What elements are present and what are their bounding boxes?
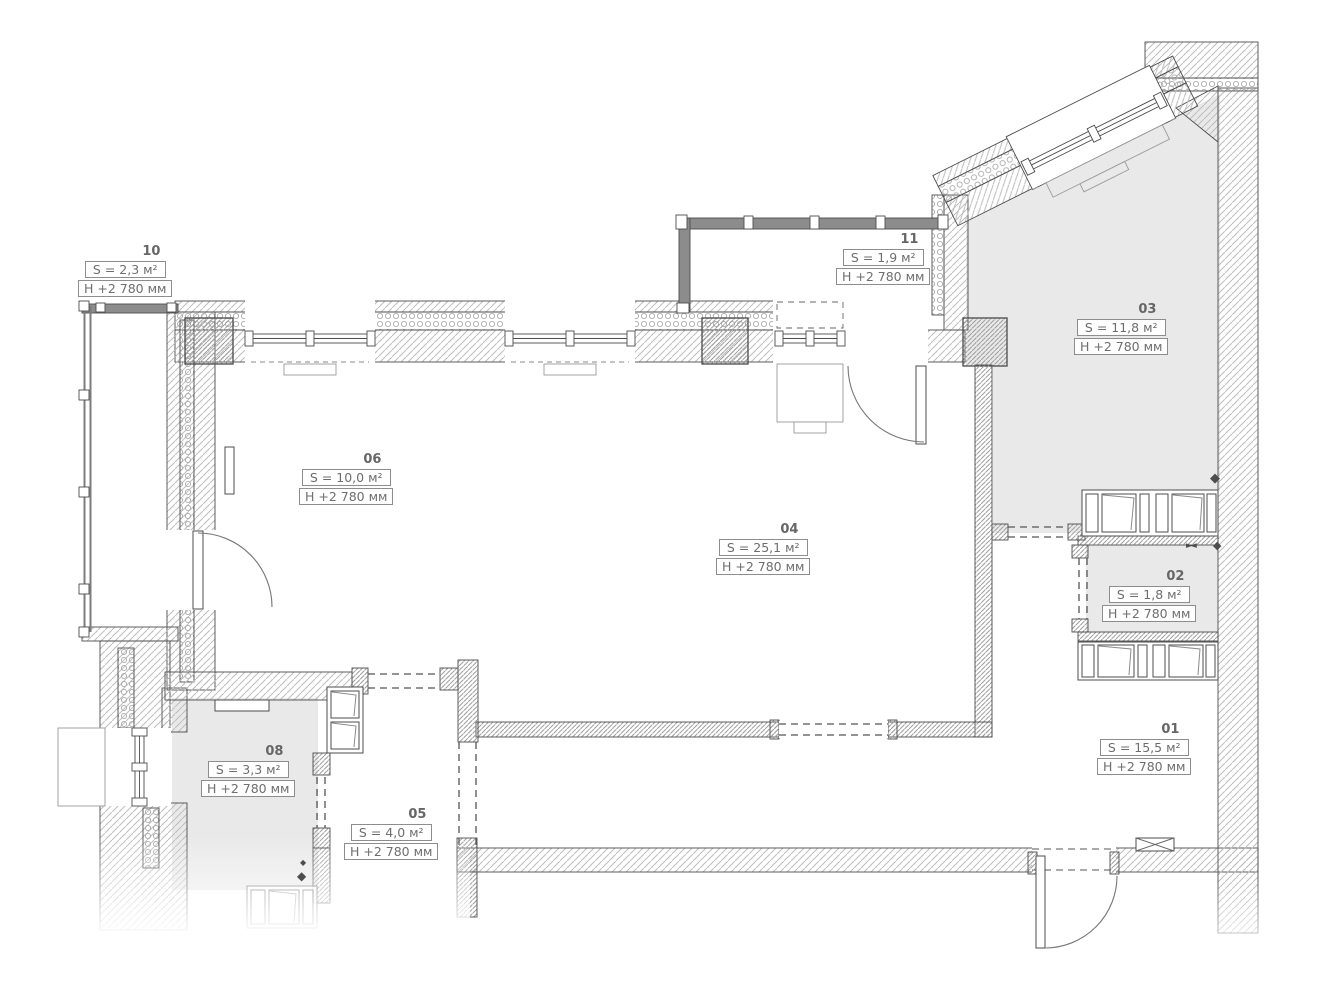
room-area: S = 3,3 м² <box>208 761 289 778</box>
opening-room05-room01 <box>459 742 476 848</box>
window <box>773 298 848 433</box>
electric-box <box>1136 838 1174 851</box>
room-number: 04 <box>716 522 810 537</box>
vent-icon: ◆ <box>1213 540 1221 551</box>
room06-door <box>166 530 272 610</box>
valve-icon: ►◄ <box>1186 542 1194 551</box>
room-height: H +2 780 мм <box>1097 758 1191 775</box>
room-label-02: 02 S = 1,8 м² H +2 780 мм <box>1102 569 1196 622</box>
window <box>58 728 171 806</box>
wardrobe-row-bottom <box>1078 642 1218 680</box>
room-height: H +2 780 мм <box>1102 605 1196 622</box>
room-area: S = 11,8 м² <box>1077 319 1166 336</box>
room-area: S = 25,1 м² <box>719 539 808 556</box>
room-number: 11 <box>836 232 930 247</box>
room-height: H +2 780 мм <box>201 780 295 797</box>
room-label-03: 03 S = 11,8 м² H +2 780 мм <box>1074 302 1168 355</box>
window <box>245 298 375 375</box>
room-label-04: 04 S = 25,1 м² H +2 780 мм <box>716 522 810 575</box>
room-height: H +2 780 мм <box>716 558 810 575</box>
room-area: S = 15,5 м² <box>1100 739 1189 756</box>
dashed-openings <box>317 527 1087 848</box>
room-label-05: 05 S = 4,0 м² H +2 780 мм <box>344 807 438 860</box>
wardrobe-row-top <box>1082 490 1218 536</box>
room-label-11: 11 S = 1,9 м² H +2 780 мм <box>836 232 930 285</box>
room-height: H +2 780 мм <box>1074 338 1168 355</box>
room-height: H +2 780 мм <box>299 488 393 505</box>
room-number: 02 <box>1102 569 1196 584</box>
opening-room04-room05 <box>368 674 438 688</box>
room-label-10: 10 S = 2,3 м² H +2 780 мм <box>78 244 172 297</box>
room-area: S = 4,0 м² <box>351 824 432 841</box>
vent-icon: ◆ <box>300 859 306 867</box>
room-label-06: 06 S = 10,0 м² H +2 780 мм <box>299 452 393 505</box>
opening-room02 <box>1079 558 1087 619</box>
balcony-door <box>848 298 928 444</box>
room-height: H +2 780 мм <box>344 843 438 860</box>
room-number: 01 <box>1097 722 1191 737</box>
room-height: H +2 780 мм <box>78 280 172 297</box>
room-label-01: 01 S = 15,5 м² H +2 780 мм <box>1097 722 1191 775</box>
room-label-08: 08 S = 3,3 м² H +2 780 мм <box>201 744 295 797</box>
glazing-bar <box>679 218 690 312</box>
room-area: S = 1,9 м² <box>843 249 924 266</box>
room-number: 05 <box>344 807 438 822</box>
radiator <box>225 447 234 494</box>
entrance-door <box>1028 846 1119 948</box>
room-area: S = 1,8 м² <box>1109 586 1190 603</box>
room-number: 06 <box>299 452 393 467</box>
floor-plan-drawing <box>0 0 1330 1000</box>
opening-room04-room01 <box>779 721 888 738</box>
room-number: 10 <box>78 244 172 259</box>
vent-icon: ◆ <box>1210 472 1220 485</box>
room-height: H +2 780 мм <box>836 268 930 285</box>
room-number: 08 <box>201 744 295 759</box>
room-number: 03 <box>1074 302 1168 317</box>
balcony-10 <box>79 301 178 637</box>
cabinet-room08-bottom <box>247 886 317 928</box>
opening-room08-room05 <box>317 777 325 828</box>
cabinet-room05 <box>327 687 363 753</box>
floor-plan: 10 S = 2,3 м² H +2 780 мм 11 S = 1,9 м² … <box>0 0 1330 1000</box>
window <box>505 298 635 375</box>
room-area: S = 2,3 м² <box>85 261 166 278</box>
shelf <box>215 700 269 711</box>
vent-icon: ◆ <box>297 870 306 882</box>
room-area: S = 10,0 м² <box>302 469 391 486</box>
